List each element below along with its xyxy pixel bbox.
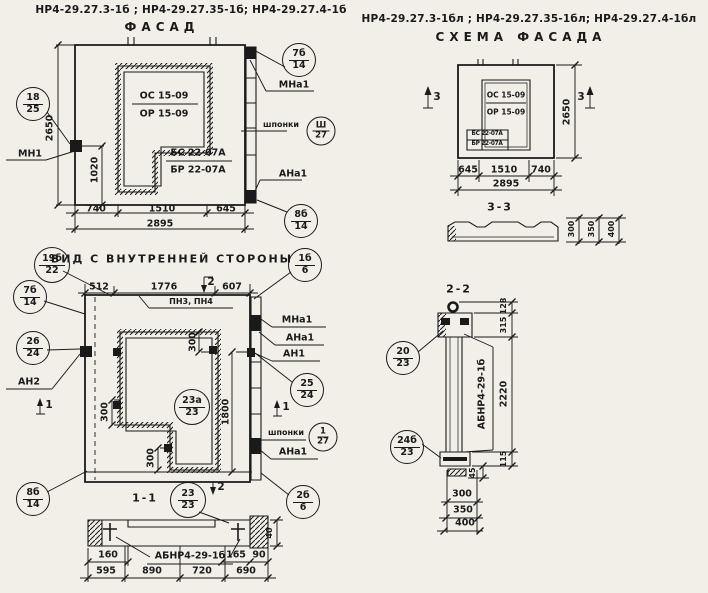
s11-dim-90: 90	[252, 550, 265, 560]
callout-23-23: 23 23	[170, 482, 206, 518]
s22-dim-350: 350	[453, 505, 473, 515]
schema-dim-w2: 1510	[491, 165, 517, 175]
inner-label-an1: АН1	[283, 349, 305, 359]
inner-label-ana1-bottom: АНа1	[279, 447, 307, 457]
callout-top: 1б	[295, 254, 314, 265]
callout-1-27: 1 27	[309, 423, 338, 452]
facade-label-ana1: АНа1	[279, 169, 307, 179]
schema-window-mark-bottom: ОР 15-09	[487, 108, 525, 116]
callout-8b-14-inner: 8б 14	[16, 482, 50, 516]
s11-dim-720: 720	[192, 566, 212, 576]
s22-dim-128: 128	[500, 298, 508, 315]
callout-bottom: 14	[21, 298, 38, 308]
callout-top: 2б	[293, 491, 312, 502]
callout-20-23: 20 23	[386, 341, 420, 375]
s22-dim-400: 400	[455, 518, 475, 528]
schema-beam-mark-top: БС 22-07А	[471, 132, 502, 138]
callout-top: 8б	[23, 488, 42, 499]
schema-codes: НР4-29.27.3-1бл ; НР4-29.27.35-1бл; НР4-…	[362, 14, 697, 25]
callout-top: 24б	[394, 436, 420, 447]
inner-dim-1800: 1800	[221, 399, 231, 425]
section-marker-2-top: 2	[207, 277, 214, 288]
callout-bottom: 6	[300, 266, 311, 276]
callout-bottom: 24	[298, 391, 315, 401]
callout-bottom: 14	[290, 61, 307, 71]
facade-title: ФАСАД	[125, 21, 200, 33]
callout-bottom: 27	[315, 438, 331, 447]
inner-label-mna1: МНа1	[282, 315, 312, 325]
callout-7b-14-inner: 7б 14	[13, 280, 47, 314]
facade-window-mark-bottom: ОР 15-09	[140, 109, 189, 119]
s22-label-abnr: АБНР4-29-1б	[477, 359, 487, 429]
callout-top: 26	[23, 337, 42, 348]
schema-dim-w1: 645	[458, 165, 478, 175]
inner-dim-t3: 607	[222, 282, 242, 292]
facade-dim-anchor: 1020	[90, 157, 100, 183]
inner-dim-300-bottom: 300	[146, 448, 156, 468]
callout-bottom: 14	[292, 222, 309, 232]
schema-dim-total: 2895	[493, 179, 519, 189]
facade-dim-w3: 645	[216, 204, 236, 214]
callout-bottom: 6	[298, 503, 309, 513]
inner-label-pn: ПН3, ПН4	[169, 298, 213, 306]
callout-top: 18	[23, 93, 42, 104]
callout-top: 7б	[289, 49, 308, 60]
section-marker-3-right: 3	[577, 92, 584, 103]
section-3-3-title: 3-3	[487, 202, 513, 213]
callout-top: 19б	[39, 254, 65, 265]
section-marker-2-bottom: 2	[217, 482, 224, 493]
callout-top: 23а	[179, 396, 205, 407]
inner-dim-t1: 512	[89, 282, 109, 292]
facade-beam-mark-bottom: БР 22-07А	[170, 165, 225, 175]
callout-bottom: 23	[394, 359, 411, 369]
facade-label-mn1: МН1	[18, 149, 42, 159]
s11-label-abnr: АБНР4-29-1б	[155, 551, 225, 561]
facade-label-shponki: шпонки	[263, 121, 299, 129]
callout-18-25: 18 25	[16, 87, 50, 121]
callout-bottom: 14	[24, 500, 41, 510]
section-marker-1-left: 1	[45, 400, 52, 411]
callout-top: 25	[297, 379, 316, 390]
facade-window-mark-top: ОС 15-09	[140, 91, 189, 101]
schema-title: СХЕМА ФАСАДА	[436, 31, 607, 43]
schema-dim-w3: 740	[531, 165, 551, 175]
s22-dim-115: 115	[500, 451, 508, 468]
callout-1b-6: 1б 6	[288, 248, 322, 282]
callout-bottom: 23	[179, 501, 196, 511]
section-marker-3-left: 3	[433, 92, 440, 103]
callout-23a-23: 23а 23	[174, 389, 210, 425]
inner-label-an2: АН2	[18, 377, 40, 387]
schema-window-mark-top: ОС 15-09	[487, 91, 525, 99]
s11-dim-595: 595	[96, 566, 116, 576]
callout-sh-27: Ш 27	[307, 117, 336, 146]
s22-dim-300: 300	[452, 489, 472, 499]
callout-26-24: 26 24	[16, 331, 50, 365]
callout-8b-14-facade: 8б 14	[284, 204, 318, 238]
s22-dim-45: 45	[469, 467, 477, 478]
facade-dim-w1: 740	[86, 204, 106, 214]
s11-dim-890: 890	[142, 566, 162, 576]
callout-7b-14-facade: 7б 14	[282, 43, 316, 77]
inner-dim-300-top: 300	[188, 332, 198, 352]
s11-dim-690: 690	[236, 566, 256, 576]
callout-19b-22: 19б 22	[34, 247, 70, 283]
schema-dim-height: 2650	[562, 99, 572, 125]
callout-bottom: 23	[398, 448, 415, 458]
callout-top: 23	[178, 489, 197, 500]
s11-dim-40: 40	[266, 527, 274, 538]
s22-dim-315: 315	[500, 317, 508, 334]
s11-dim-165: 165	[226, 550, 246, 560]
section-marker-1-right: 1	[282, 402, 289, 413]
blueprint-sheet: НР4-29.27.3-1б ; НР4-29.27.35-1б; НР4-29…	[0, 0, 708, 593]
inner-dim-t2: 1776	[151, 282, 177, 292]
s33-dim-350: 350	[588, 221, 596, 238]
callout-top: 20	[393, 347, 412, 358]
callout-25-24: 25 24	[290, 373, 324, 407]
inner-view-title: ВИД С ВНУТРЕННЕЙ СТОРОНЫ	[51, 254, 293, 265]
schema-beam-mark-bottom: БР 22-07А	[471, 142, 502, 148]
callout-24b-23: 24б 23	[390, 430, 424, 464]
callout-bottom: 23	[183, 408, 200, 418]
s33-dim-400: 400	[608, 221, 616, 238]
callout-2b-6: 2б 6	[286, 485, 320, 519]
s11-dim-160: 160	[98, 550, 118, 560]
s33-dim-300: 300	[568, 221, 576, 238]
callout-bottom: 25	[24, 105, 41, 115]
facade-dim-total: 2895	[147, 219, 173, 229]
facade-beam-mark-top: БС 22-07А	[170, 148, 225, 158]
section-2-2-title: 2-2	[446, 284, 472, 295]
section-1-1-title: 1-1	[132, 493, 158, 504]
facade-codes: НР4-29.27.3-1б ; НР4-29.27.35-1б; НР4-29…	[35, 5, 346, 16]
callout-top: 7б	[20, 286, 39, 297]
facade-dim-w2: 1510	[149, 204, 175, 214]
facade-label-mna1: МНа1	[279, 80, 309, 90]
facade-dim-height: 2650	[45, 115, 55, 141]
drawing-linework	[0, 0, 708, 593]
inner-label-ana1-top: АНа1	[286, 333, 314, 343]
inner-dim-300-left: 300	[100, 402, 110, 422]
callout-bottom: 27	[313, 132, 329, 141]
inner-label-shponki: шпонки	[268, 429, 304, 437]
callout-bottom: 24	[24, 349, 41, 359]
callout-top: 8б	[291, 210, 310, 221]
callout-bottom: 22	[43, 266, 60, 276]
s22-dim-2220: 2220	[499, 381, 509, 407]
